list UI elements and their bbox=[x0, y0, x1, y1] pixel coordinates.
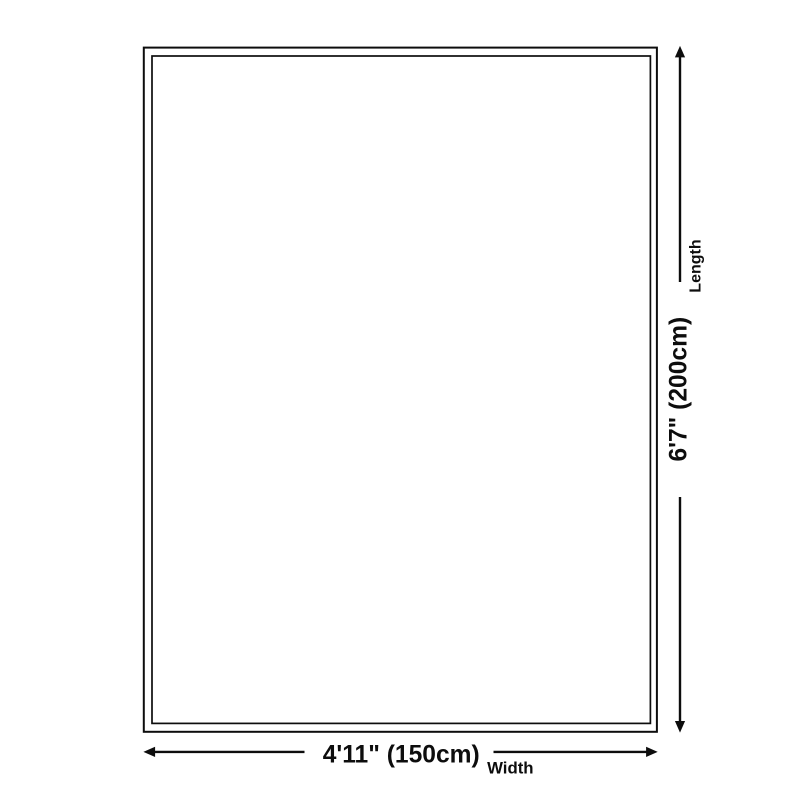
svg-text:Length: Length bbox=[688, 239, 705, 292]
svg-text:4'11" (150cm): 4'11" (150cm) bbox=[323, 741, 480, 768]
svg-text:6'7" (200cm): 6'7" (200cm) bbox=[666, 317, 693, 462]
svg-text:Width: Width bbox=[487, 759, 533, 778]
